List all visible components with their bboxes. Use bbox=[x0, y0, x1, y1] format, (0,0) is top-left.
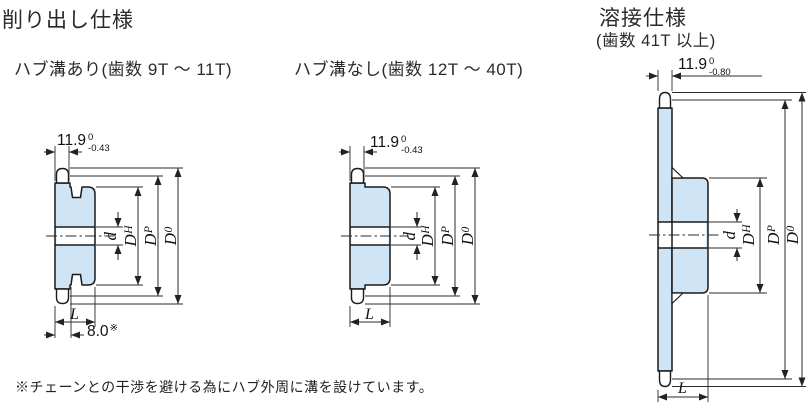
width-dimension-grooved: 11.9 0-0.43 bbox=[57, 133, 110, 155]
tooth-top bbox=[352, 169, 364, 184]
pitch-diameter-label: DP bbox=[438, 214, 456, 258]
tooth-top bbox=[57, 169, 69, 184]
outer-diameter-label: D0 bbox=[161, 214, 179, 258]
bore-diameter-label: d bbox=[101, 214, 119, 258]
width-dimension-plain: 11.9 0-0.43 bbox=[370, 135, 423, 157]
bore-diameter-label: d bbox=[720, 213, 738, 257]
outer-diameter-label: D0 bbox=[458, 214, 476, 258]
pitch-diameter-label: DP bbox=[764, 213, 782, 257]
hub-length-label-plain: L bbox=[365, 307, 374, 323]
pitch-diameter-label: DP bbox=[141, 214, 159, 258]
groove-footnote: ※チェーンとの干渉を避ける為にハブ外周に溝を設けています。 bbox=[15, 377, 433, 397]
hub-length-label-welded: L bbox=[678, 381, 687, 397]
outer-diameter-label: D0 bbox=[783, 213, 801, 257]
hub-diameter-label: DH bbox=[739, 213, 757, 257]
tooth-top bbox=[660, 93, 671, 109]
hub-length-label-grooved: L bbox=[70, 307, 79, 323]
tooth-bottom bbox=[57, 289, 69, 304]
groove-dimension: 8.0※ bbox=[87, 324, 118, 340]
weld-fillet-top bbox=[672, 168, 683, 179]
tooth-bottom bbox=[352, 289, 364, 304]
catalog-drawing-page: 削り出し仕様 ハブ溝あり(歯数 9T 〜 11T) ハブ溝なし(歯数 12T 〜… bbox=[0, 0, 807, 411]
weld-fillet-bottom bbox=[672, 293, 683, 304]
hub-diameter-label: DH bbox=[418, 214, 436, 258]
width-dimension-welded: 11.9 0-0.80 bbox=[678, 57, 731, 79]
hub-diameter-label: DH bbox=[121, 214, 139, 258]
bore-diameter-label: d bbox=[400, 214, 418, 258]
tooth-bottom bbox=[660, 371, 671, 387]
